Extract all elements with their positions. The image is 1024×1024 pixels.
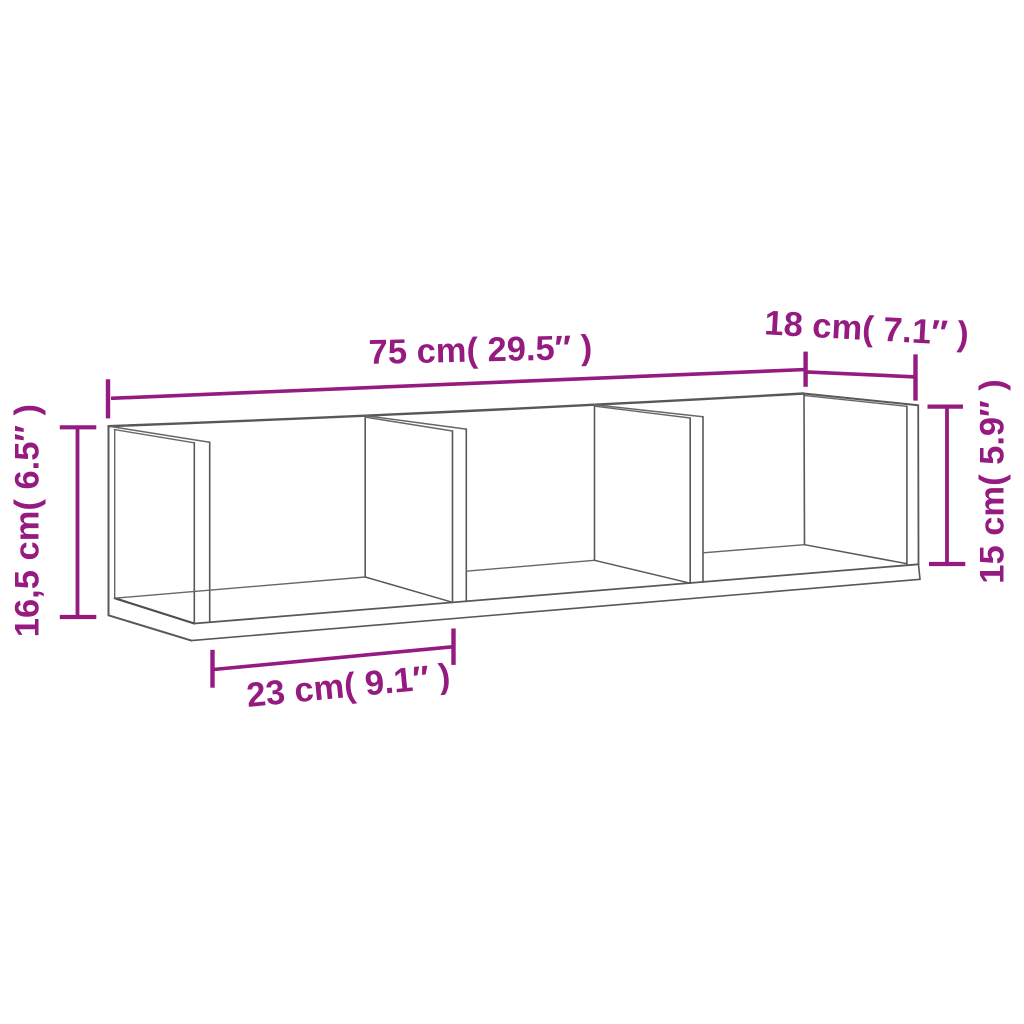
- svg-text:15 cm( 5.9″ ): 15 cm( 5.9″ ): [973, 379, 1011, 583]
- svg-text:18 cm( 7.1″ ): 18 cm( 7.1″ ): [763, 304, 969, 353]
- svg-text:16,5 cm( 6.5″ ): 16,5 cm( 6.5″ ): [8, 404, 46, 637]
- svg-text:75 cm( 29.5″ ): 75 cm( 29.5″ ): [368, 329, 592, 372]
- svg-text:23 cm( 9.1″ ): 23 cm( 9.1″ ): [245, 657, 452, 715]
